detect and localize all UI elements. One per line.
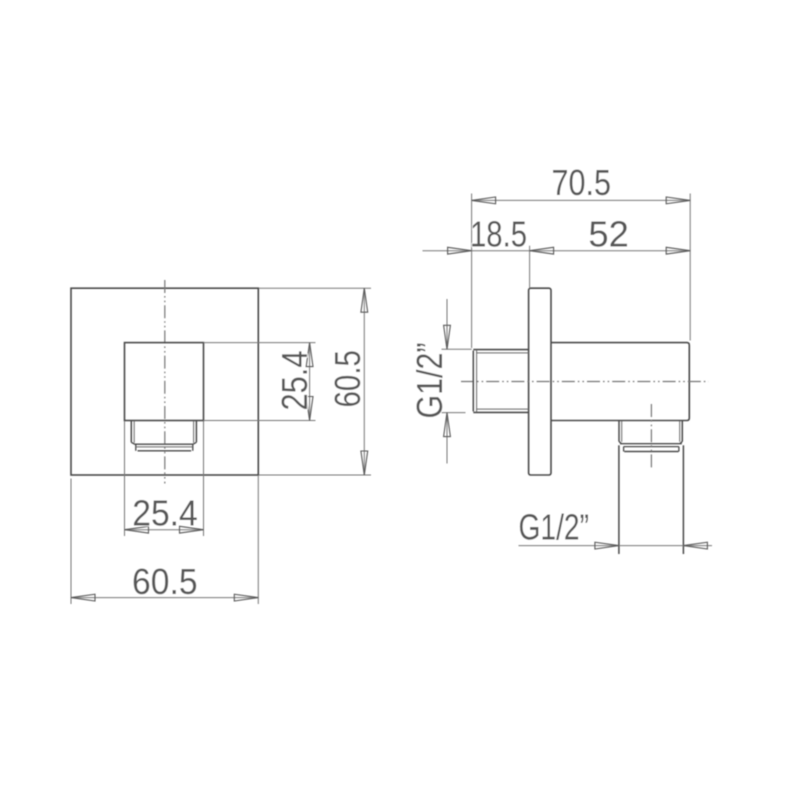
svg-text:70.5: 70.5 (552, 162, 612, 203)
svg-text:G1/2”: G1/2” (411, 343, 451, 419)
svg-text:52: 52 (588, 214, 629, 255)
svg-text:60.5: 60.5 (327, 350, 368, 408)
svg-text:G1/2”: G1/2” (519, 507, 589, 547)
svg-text:60.5: 60.5 (132, 561, 198, 602)
svg-text:18.5: 18.5 (470, 214, 527, 255)
svg-text:25.4: 25.4 (274, 351, 315, 411)
svg-text:25.4: 25.4 (132, 493, 198, 534)
